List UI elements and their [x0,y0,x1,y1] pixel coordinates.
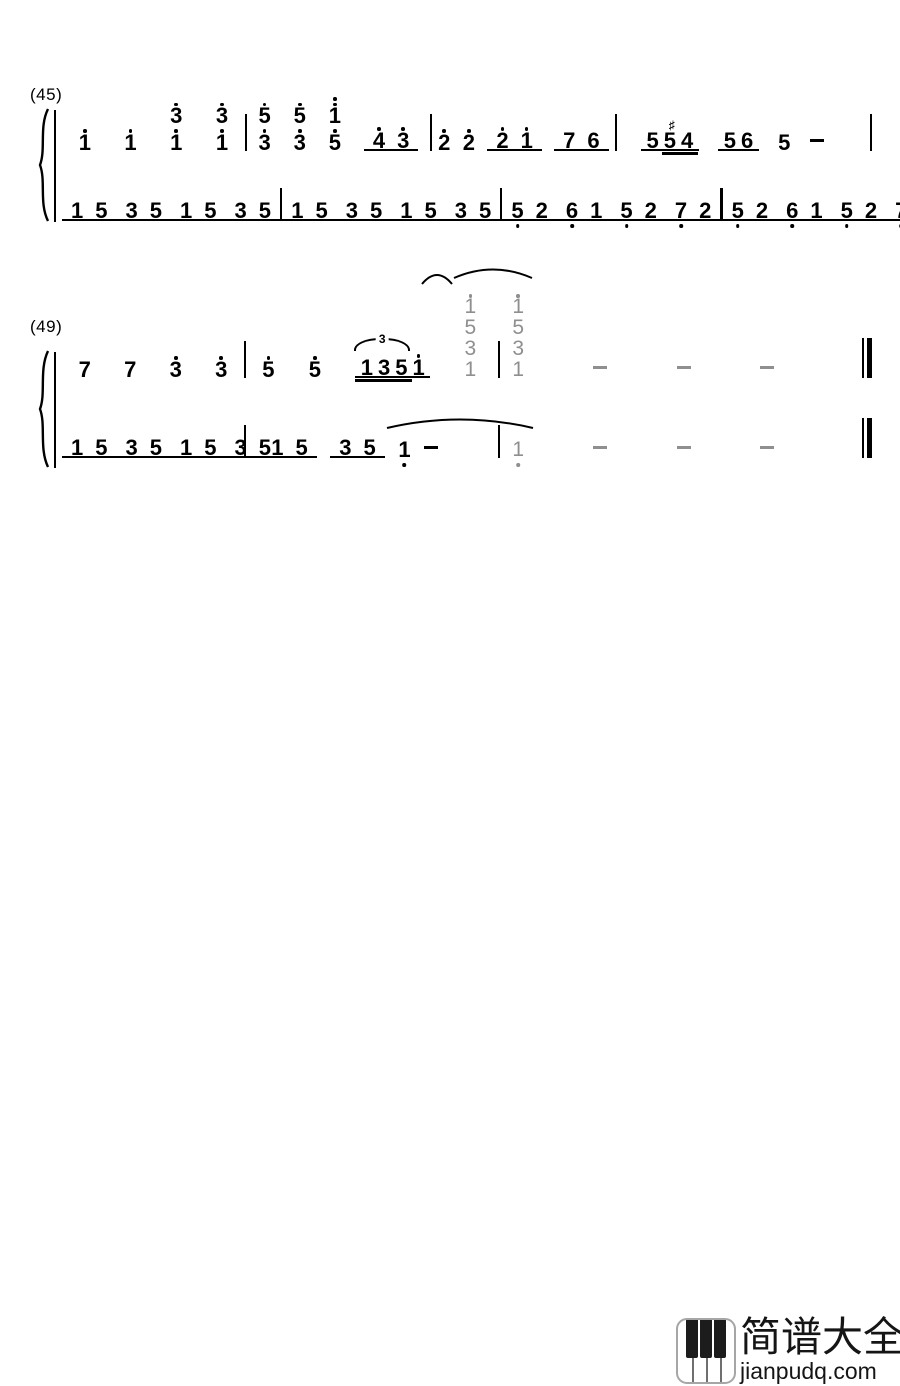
bass-line: 15351535153515355261527252615272 [62,185,872,221]
beam-group: 31351 [355,353,430,378]
note: 1 [412,353,424,376]
note: 1 [71,439,83,456]
measure: 15351 [246,439,498,458]
digit: 7 [895,202,900,219]
note-cell: 6 [566,202,578,219]
note: 5 [259,202,271,219]
digit: 1 [512,362,524,378]
digit: 2 [438,134,450,151]
note-cell: 1 [590,202,602,219]
beam-group: 52 [611,202,666,221]
note: 3 [378,359,390,376]
note-cell: 5 [259,202,271,219]
digit: 5 [724,132,736,149]
note: 6 [786,202,798,219]
digit: 3 [339,439,351,456]
note: 4 [373,126,385,149]
digit: 4 [373,132,385,149]
note-cell: 6 [786,202,798,219]
system-start-barline [54,110,56,222]
digit: 1 [412,359,424,376]
beam-group: 52 [832,202,887,221]
digit: 3 [235,202,247,219]
measure: 15351535 [282,202,500,221]
end-barline [862,338,872,378]
digit: 3 [378,359,390,376]
melody-line: 1131315353154322217655♯4565 [62,85,872,151]
note: 5 [395,359,407,376]
note-cell: 7 [675,202,687,219]
digit: 5 [150,202,162,219]
note: 5 [479,202,491,219]
note-cell: 5 [511,202,523,219]
note-cell: 1 [361,359,373,376]
beam-group: 43 [364,126,419,151]
note: 1 [398,441,410,458]
note: 2 [865,202,877,219]
digit: 6 [566,202,578,219]
note: 1 [810,202,822,219]
note-cell: 2 [496,126,508,149]
note: 4 [681,132,693,149]
digit: 1 [512,299,524,315]
note-cell: 5 [262,355,274,378]
note-cell: 5 [778,134,790,151]
measure: 222176 [432,126,615,151]
note: 6 [587,132,599,149]
beam-group: 15 [282,202,337,221]
end-barline [870,114,872,151]
note-cell: 1 [71,439,83,456]
digit: 5 [95,439,107,456]
note: 5 [424,202,436,219]
watermark-site-name: 简谱大全 [740,1316,900,1359]
measure: 1 [500,442,862,458]
note: 5 [95,202,107,219]
digit: 5 [370,202,382,219]
note-cell: 1 [329,96,341,124]
measure: 1531 [500,293,862,378]
note-cell: 5 [512,320,524,336]
digit: 1 [464,362,476,378]
digit: 5 [512,320,524,336]
digit: 5 [364,439,376,456]
note: 31 [216,102,228,151]
digit: 1 [170,134,182,151]
digit: 5 [294,107,306,124]
note-cell: 5♯ [664,132,676,149]
system-brace-icon [34,349,52,469]
beam-group: 52 [502,202,557,221]
note-cell: 5 [370,202,382,219]
beam-group: 15 [391,202,446,221]
octave-dot-below [625,224,629,228]
note-cell: 2 [699,202,711,219]
note: 3 [235,439,247,456]
note: 1 [71,202,83,219]
digit: 5♯ [664,132,676,149]
digit: 1 [512,442,524,458]
digit: 1 [271,439,283,456]
digit: 5 [315,202,327,219]
digit: 5 [295,439,307,456]
beam-group: 15 [171,202,226,221]
digit: 5 [95,202,107,219]
note-cell: 5 [329,128,341,151]
note: 5 [295,439,307,456]
note-cell: 3 [170,355,182,378]
digit: 3 [235,439,247,456]
measure-number-label: (49) [30,317,62,337]
note-cell: 4 [681,132,693,149]
digit: 5 [262,361,274,378]
note-cell: 2 [645,202,657,219]
piano-keys-icon [676,1318,736,1384]
octave-dot-below [516,224,520,228]
digit: 5 [395,359,407,376]
note: 1 [512,442,524,458]
note: 6 [741,132,753,149]
digit: 6 [587,132,599,149]
beam-group: 15 [171,439,226,458]
note: 5 [315,202,327,219]
digit: 2 [699,202,711,219]
beam-group: 76 [554,132,609,151]
digit: 5 [204,439,216,456]
note: 5 [778,134,790,151]
digit: 3 [464,341,476,357]
note-cell: 3 [346,202,358,219]
note: 5 [724,132,736,149]
digit: 7 [79,361,91,378]
note: 3 [455,202,467,219]
note-cell: 3 [170,102,182,125]
digit: 3 [126,202,138,219]
note: 5 [364,439,376,456]
note-cell: 1 [521,126,533,149]
octave-dot-below [790,224,794,228]
beam-group: 52 [723,202,778,221]
note: 5 [95,439,107,456]
note: 1 [590,202,602,219]
digit: 5 [464,320,476,336]
digit: 1 [71,202,83,219]
note: 5 [511,202,523,219]
system-49: (49) 7733553135115311531 15351535153511 [28,255,872,475]
digit: 5 [204,202,216,219]
note: 1 [180,439,192,456]
digit: 5 [647,132,659,149]
digit: 1 [71,439,83,456]
note: 5 [647,132,659,149]
digit: 5 [732,202,744,219]
chord-note: 1531 [464,293,476,378]
note-cell: 1 [512,362,524,378]
digit: 1 [521,132,533,149]
octave-dot-below [516,463,520,467]
note: 2 [699,202,711,219]
beam-group: 35 [330,439,385,458]
note-cell: 3 [258,128,270,151]
note-cell: 1 [400,202,412,219]
note-cell: 3 [216,102,228,125]
dash-note [810,139,824,142]
triplet-number: 3 [376,333,389,345]
dash-note [593,366,607,369]
digit: 2 [756,202,768,219]
beam-group: 35 [446,202,501,221]
note: 2 [756,202,768,219]
digit: 3 [294,134,306,151]
system-brace-icon [34,107,52,223]
note-cell: 5 [309,355,321,378]
note-cell: 1 [180,202,192,219]
digit: 4 [681,132,693,149]
note: 2 [536,202,548,219]
system-45: (45) 1131315353154322217655♯4565 1535153… [28,85,872,245]
note: 53 [258,102,270,151]
beam-group: 15 [262,439,317,458]
triplet-bracket: 3 [354,338,410,351]
beam-group: 72 [886,202,900,221]
digit: 5 [841,202,853,219]
digit: 1 [810,202,822,219]
note-cell: 5 [204,202,216,219]
dash-note [677,446,691,449]
note: 5 [370,202,382,219]
digit: 3 [126,439,138,456]
note-cell: 3 [235,439,247,456]
beam-group: 15 [62,439,117,458]
note-cell: 3 [378,359,390,376]
note: 5 [620,202,632,219]
digit: 3 [170,107,182,124]
digit: 1 [400,202,412,219]
watermark-link[interactable]: 简谱大全 jianpudq.com [676,1316,900,1384]
note-cell: 5 [258,102,270,125]
note-cell: 5 [464,320,476,336]
note-cell: 1 [412,353,424,376]
note: 3 [215,355,227,378]
note: 3 [126,439,138,456]
note-cell: 5 [95,439,107,456]
note: 1 [124,128,136,151]
note-cell: 3 [512,341,524,357]
note: 3 [126,202,138,219]
digit: 1 [464,299,476,315]
note-cell: 2 [756,202,768,219]
note-cell: 1 [79,128,91,151]
note-cell: 6 [587,132,599,149]
note-cell: 1 [170,128,182,151]
bass-line: 15351535153511 [62,415,872,458]
measure-number-label: (45) [30,85,62,105]
digit: 2 [536,202,548,219]
note: 5 [732,202,744,219]
note-cell: 3 [294,128,306,151]
digit: 1 [590,202,602,219]
digit: 6 [786,202,798,219]
digit: 5 [424,202,436,219]
note-cell: 5 [364,439,376,456]
melody-line: 7733553135115311531 [62,255,872,378]
digit: 5 [511,202,523,219]
note: 2 [463,128,475,151]
note-cell: 1 [398,441,410,458]
note-cell: 4 [373,126,385,149]
beam-group: 61 [557,202,612,221]
note: 1 [361,359,373,376]
digit: 5 [150,439,162,456]
octave-dot-below [736,224,740,228]
digit: 5 [778,134,790,151]
note-cell: 3 [235,202,247,219]
watermark-site-url: jianpudq.com [740,1359,900,1383]
measure: 113131 [62,102,245,151]
beam-group: 35 [117,439,172,458]
note-cell: 3 [126,202,138,219]
note-cell: 1 [464,362,476,378]
note-cell: 7 [124,361,136,378]
note-cell: 7 [895,202,900,219]
note-cell: 3 [126,439,138,456]
digit: 1 [180,202,192,219]
note-cell: 5 [315,202,327,219]
note: 1 [521,126,533,149]
note: 5 [204,439,216,456]
digit: 3 [346,202,358,219]
note: 5♯ [664,132,676,149]
dash-note [760,446,774,449]
digit: 2 [645,202,657,219]
digit: 3 [455,202,467,219]
note: 2 [438,128,450,151]
note-cell: 5 [150,202,162,219]
note-cell: 1 [180,439,192,456]
note: 5 [204,202,216,219]
note: 3 [339,439,351,456]
digit: 7 [124,361,136,378]
note-cell: 5 [620,202,632,219]
digit: 5 [309,361,321,378]
note-cell: 5 [479,202,491,219]
measure: 53531543 [247,96,430,151]
measure: 52615272 [502,202,720,221]
note: 2 [645,202,657,219]
note-cell: 1 [71,202,83,219]
measure: 7733 [62,355,244,378]
digit: 3 [512,341,524,357]
note-cell: 5 [150,439,162,456]
note: 3 [346,202,358,219]
digit: 3 [215,361,227,378]
beam-group: 55♯4 [641,132,699,151]
note: 5 [841,202,853,219]
digit: 1 [291,202,303,219]
digit: 1 [180,439,192,456]
note-cell: 6 [741,132,753,149]
digit: 1 [216,134,228,151]
beam-group: 72 [666,202,721,221]
note-cell: 1 [512,293,524,315]
measure: 52615272 [723,202,900,221]
note-cell: 5 [647,132,659,149]
octave-dot-below [403,463,407,467]
note: 7 [895,202,900,219]
octave-dot-below [679,224,683,228]
note: 7 [79,361,91,378]
octave-dot-below [570,224,574,228]
digit: 1 [398,441,410,458]
digit: 2 [865,202,877,219]
octave-dot [333,97,337,101]
note: 7 [675,202,687,219]
beam-group: 61 [777,202,832,221]
note-cell: 7 [563,132,575,149]
note-cell: 1 [271,439,283,456]
note-cell: 3 [397,126,409,149]
note: 3 [235,202,247,219]
note-cell: 5 [424,202,436,219]
note-cell: 7 [79,361,91,378]
dash-note [677,366,691,369]
note-cell: 2 [865,202,877,219]
note: 15 [329,96,341,151]
note: 1 [400,202,412,219]
digit: 5 [329,134,341,151]
digit: 3 [397,132,409,149]
dash-note [760,366,774,369]
note-cell: 1 [124,128,136,151]
digit: 3 [216,107,228,124]
note-cell: 1 [810,202,822,219]
digit: 1 [79,134,91,151]
note-cell: 5 [295,439,307,456]
octave-dot-below [845,224,849,228]
note: 1 [79,128,91,151]
note-cell: 1 [216,128,228,151]
note-cell: 5 [294,102,306,125]
digit: 1 [124,134,136,151]
note: 3 [397,126,409,149]
note-cell: 5 [204,439,216,456]
digit: 2 [463,134,475,151]
digit: 3 [170,361,182,378]
digit: 5 [259,202,271,219]
note: 31 [170,102,182,151]
digit: 1 [361,359,373,376]
end-barline [862,418,872,458]
note: 1 [180,202,192,219]
note-cell: 5 [732,202,744,219]
note-cell: 3 [215,355,227,378]
note: 6 [566,202,578,219]
note: 5 [262,355,274,378]
digit: 1 [329,107,341,124]
note-cell: 1 [464,293,476,315]
note: 2 [496,126,508,149]
note-cell: 2 [463,128,475,151]
measure: 55313511531 [246,293,498,378]
note: 5 [150,202,162,219]
note-cell: 3 [339,439,351,456]
digit: 2 [496,132,508,149]
note: 7 [124,361,136,378]
note: 5 [309,355,321,378]
note-cell: 1 [512,442,524,458]
note: 1 [291,202,303,219]
note-cell: 5 [841,202,853,219]
